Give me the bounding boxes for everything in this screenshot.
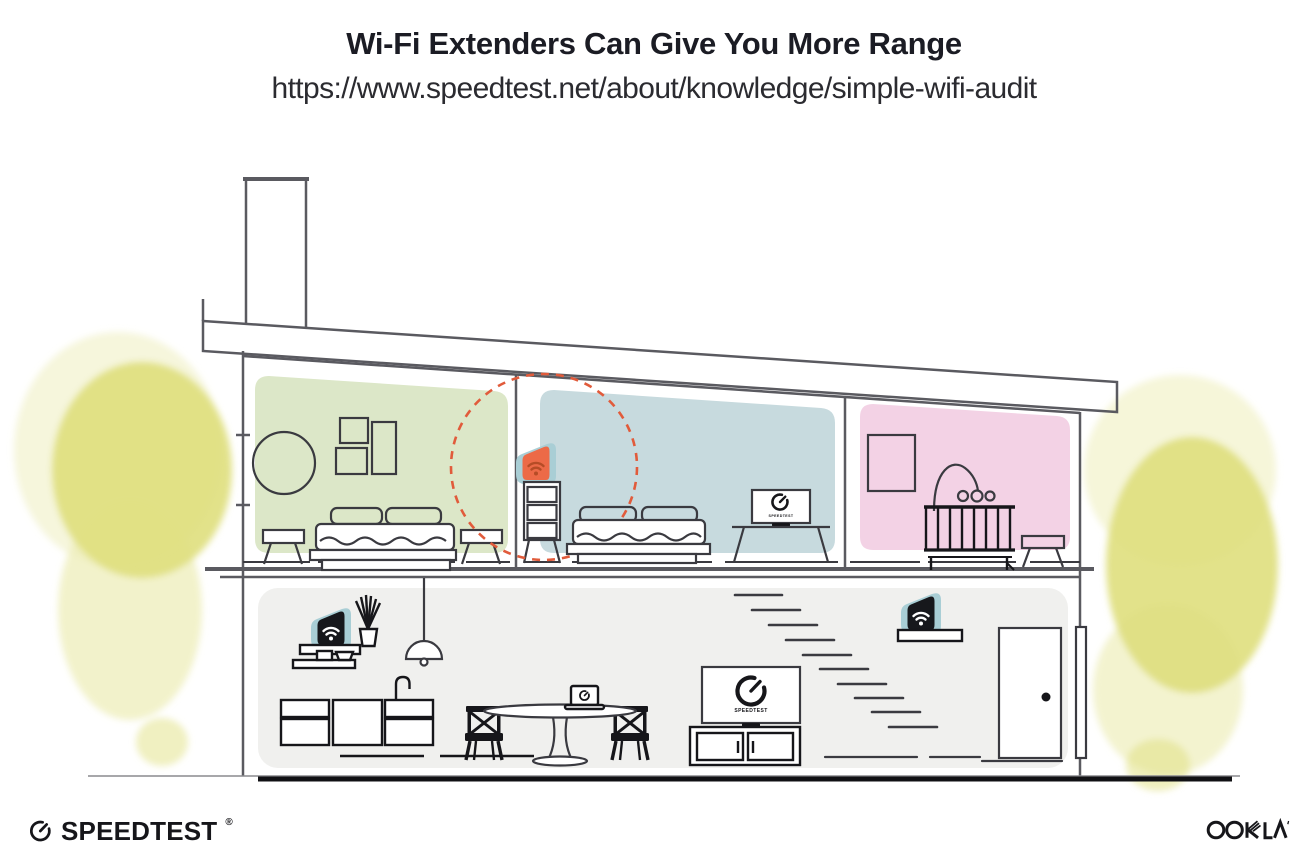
- nursery-wall: [860, 404, 1070, 550]
- dining-table: [484, 705, 636, 718]
- laptop: [565, 686, 604, 709]
- speedtest-wordmark: SPEEDTEST: [61, 816, 217, 847]
- foliage-right: [1084, 375, 1278, 791]
- house-structure: [88, 179, 1240, 781]
- ookla-logo: OOKLA: [1206, 816, 1292, 847]
- door-knob: [1042, 693, 1051, 702]
- tv-living-label: SPEEDTEST: [734, 708, 767, 714]
- speedtest-trademark: ®: [225, 817, 232, 828]
- source-url: https://www.speedtest.net/about/knowledg…: [0, 72, 1308, 106]
- speedtest-logo: SPEEDTEST®: [18, 813, 232, 849]
- infographic-page: Wi-Fi Extenders Can Give You More Range …: [0, 0, 1308, 861]
- downspout: [1076, 627, 1086, 758]
- speedtest-gauge-logo-icon: [18, 813, 54, 849]
- chimney: [243, 179, 309, 329]
- page-title: Wi-Fi Extenders Can Give You More Range: [0, 26, 1308, 62]
- ookla-logo-graphic: [1206, 816, 1292, 842]
- house-illustration: SPEEDTEST: [0, 0, 1308, 861]
- front-door: [999, 628, 1061, 758]
- hallway-shelf: [898, 630, 962, 641]
- header: Wi-Fi Extenders Can Give You More Range …: [0, 0, 1308, 106]
- foliage-left: [14, 332, 232, 766]
- tv-living: SPEEDTEST: [690, 667, 800, 765]
- tv-bedroom-label: SPEEDTEST: [769, 514, 794, 518]
- media-cabinet: [690, 727, 800, 765]
